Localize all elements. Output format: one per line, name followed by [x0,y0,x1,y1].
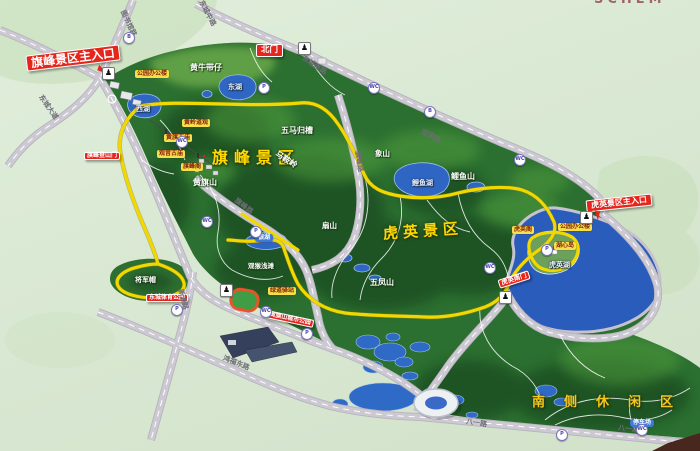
zone-title-south-leisure: 南侧休闲区 [532,396,692,409]
mtn-label-xiangshan: 象山 [375,150,390,158]
poi-guanyin-temple: 观音古庙 [157,150,185,158]
mtn-label-wufengshan: 五凤山 [370,279,394,287]
board-partial-title: SCHEM [594,0,666,6]
park-map-board: 旗峰景区 虎英景区 南侧休闲区 SCHEM 旗峰景区主入口 北门 旗峰登山门 虎… [0,0,700,451]
badge-wc: WC [484,262,496,274]
poi-huangling-temple: 黄岭道观 [182,119,210,127]
badge-wc: WC [201,216,213,228]
mtn-label-wumaguicao: 五马归槽 [281,127,313,135]
badge-parking: P [556,429,568,441]
lake-label-west-lake: 西湖 [136,106,150,113]
badge-bus: B [424,106,436,118]
badge-parking: P [250,226,262,238]
badge-wc: WC [176,136,188,148]
poi-lake-island: 湖心岛 [554,242,576,250]
walker-icon-huying-south: ♟ [499,291,512,304]
mtn-label-shanshan: 扇山 [322,222,337,230]
walker-icon-qifeng-main: ♟ [102,67,115,80]
lake-label-east-lake: 东湖 [228,84,242,91]
walker-icon-sports-park: ♟ [220,284,233,297]
mtn-label-jiangjunmao: 将军帽 [135,277,156,284]
poi-huying-pavilion: 虎英阁 [512,226,534,234]
badge-parking: P [171,304,183,316]
badge-parking: P [258,82,270,94]
poi-park-office-west: 公园办公楼 [135,70,169,78]
badge-wc: WC [636,424,648,436]
sign-north-gate: 北门 [256,44,283,57]
poi-qifeng-pavilion: 旗峰阁 [181,163,203,171]
mtn-label-huangqishan: 黄旗山 [193,179,217,187]
badge-wc: WC [368,82,380,94]
walker-icon-north-gate: ♟ [298,42,311,55]
mtn-label-shoal: 观猴浅滩 [248,263,274,270]
badge-wc: WC [514,154,526,166]
badge-wc: WC [260,306,272,318]
badge-parking: P [541,244,553,256]
badge-bus: B [123,32,135,44]
badge-parking: P [301,328,313,340]
mtn-label-huangniudaizai: 黄牛带仔 [190,64,222,72]
poi-greenway-station: 绿道驿站 [268,287,296,295]
poi-park-office-east: 公园办公楼 [558,223,592,231]
sign-qifeng-hill-gate: 旗峰登山门 [84,152,120,160]
mtn-label-liyushan: 鲤鱼山 [451,173,475,181]
walker-icon-huying-main: ♟ [580,211,593,224]
lake-label-carp-lake: 鲤鱼湖 [412,180,433,187]
lake-label-huying-lake: 虎英湖 [549,262,570,269]
